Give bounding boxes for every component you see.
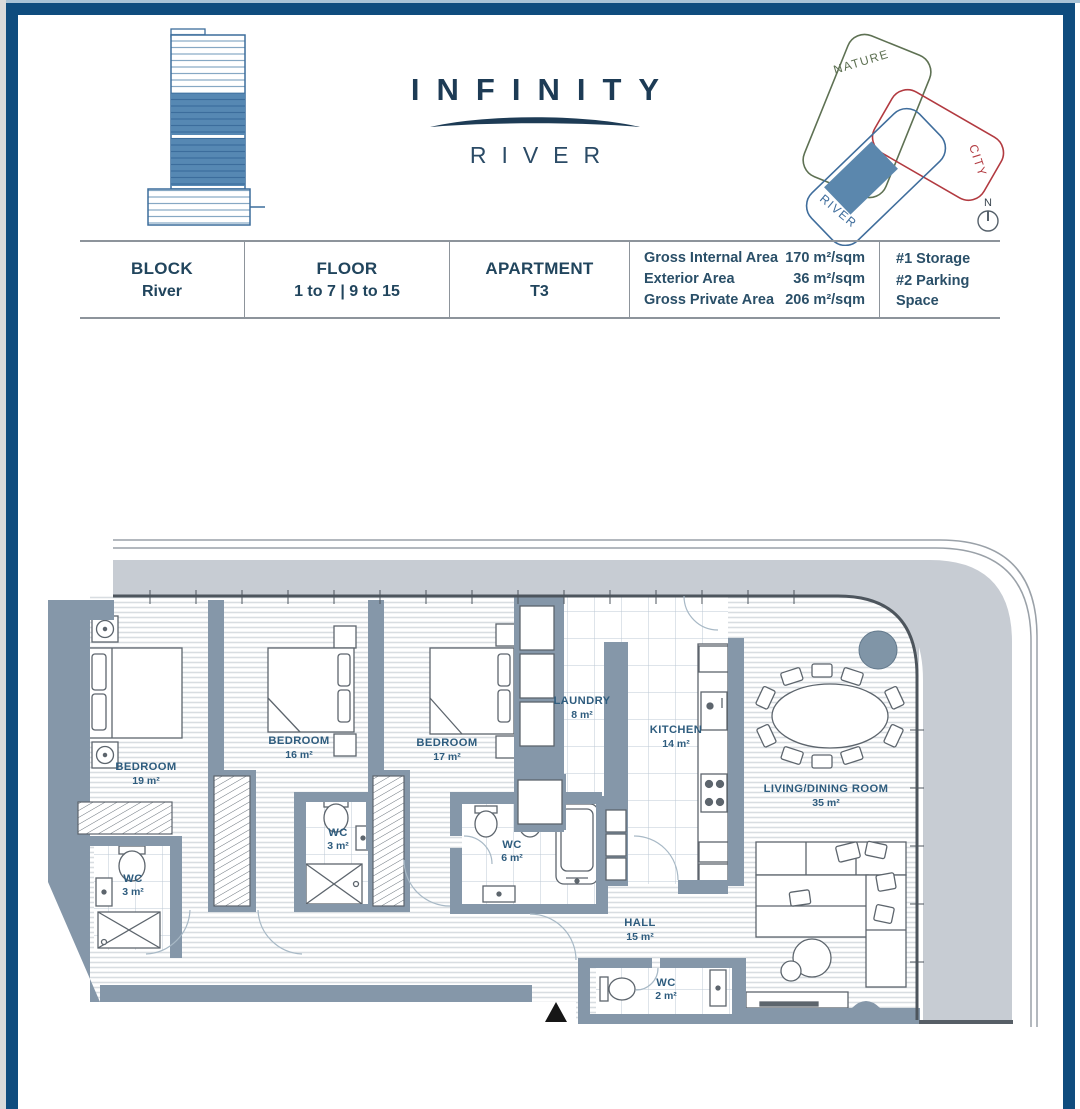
floorplan-sheet: INFINITY RIVER NATURE CITY RIVER N BLOCK (0, 0, 1080, 1109)
brand-block: INFINITY RIVER (330, 72, 740, 169)
floor-cell: FLOOR 1 to 7 | 9 to 15 (245, 242, 450, 317)
kitchen-counter (698, 644, 728, 884)
tower-highlight-band-lower (171, 138, 245, 186)
room-area-bedroom-16: 16 m² (285, 749, 313, 761)
block-cell: BLOCK River (80, 242, 245, 317)
area-label: Exterior Area (644, 270, 735, 289)
room-label-wc-6: WC (502, 839, 521, 851)
room-label-wc-2: WC (328, 827, 347, 839)
brand-title: INFINITY (330, 72, 740, 108)
area-label: Gross Internal Area (644, 249, 778, 268)
extras-cell: #1 Storage #2 Parking Space (880, 242, 1000, 317)
parking-line: #2 Parking Space (896, 271, 1000, 311)
room-area-kitchen: 14 m² (662, 738, 690, 750)
room-area-living-dining: 35 m² (812, 797, 840, 809)
building-logo-icon (138, 25, 268, 237)
storage-line: #1 Storage (896, 249, 1000, 269)
room-label-hall: HALL (624, 917, 655, 929)
room-label-wc-hall: WC (656, 977, 675, 989)
area-value: 206 m²/sqm (785, 291, 865, 310)
room-area-hall: 15 m² (626, 931, 654, 943)
room-area-wc-1: 3 m² (122, 886, 144, 898)
floor-plan: BEDROOM 19 m² BEDROOM 16 m² BEDROOM 17 m… (0, 530, 1080, 1060)
wave-icon (430, 117, 640, 131)
brand-subtitle: RIVER (330, 142, 740, 169)
building-locator-diagram: NATURE CITY RIVER N (785, 18, 1020, 246)
room-area-wc-2: 3 m² (327, 840, 349, 852)
room-label-bedroom-19: BEDROOM (115, 761, 176, 773)
block-header: BLOCK (131, 259, 193, 279)
apartment-value: T3 (530, 283, 549, 301)
room-area-bedroom-19: 19 m² (132, 775, 160, 787)
wing-fills (798, 29, 1010, 246)
area-row: Gross Private Area 206 m²/sqm (644, 291, 865, 310)
room-label-bedroom-17: BEDROOM (416, 737, 477, 749)
room-area-bedroom-17: 17 m² (433, 751, 461, 763)
tower-podium (148, 189, 250, 225)
area-row: Exterior Area 36 m²/sqm (644, 270, 865, 289)
floor-value: 1 to 7 | 9 to 15 (294, 283, 400, 301)
compass-north-label: N (984, 197, 992, 209)
page-border-top (6, 3, 1075, 15)
room-area-laundry: 8 m² (571, 709, 593, 721)
areas-cell: Gross Internal Area 170 m²/sqm Exterior … (630, 242, 880, 317)
compass-icon: N (978, 197, 998, 231)
room-area-wc-6: 6 m² (501, 852, 523, 864)
apartment-header: APARTMENT (485, 259, 593, 279)
area-row: Gross Internal Area 170 m²/sqm (644, 249, 865, 268)
room-label-living-dining: LIVING/DINING ROOM (764, 783, 889, 795)
room-label-kitchen: KITCHEN (650, 724, 703, 736)
room-area-wc-hall: 2 m² (655, 990, 677, 1002)
apartment-cell: APARTMENT T3 (450, 242, 630, 317)
room-label-laundry: LAUNDRY (553, 695, 610, 707)
room-label-wc-1: WC (123, 873, 142, 885)
exterior-mask (56, 1002, 576, 1022)
unit-info-table: BLOCK River FLOOR 1 to 7 | 9 to 15 APART… (80, 240, 1000, 319)
area-label: Gross Private Area (644, 291, 774, 310)
area-value: 36 m²/sqm (793, 270, 865, 289)
area-value: 170 m²/sqm (785, 249, 865, 268)
block-value: River (142, 283, 182, 301)
floor-header: FLOOR (317, 259, 378, 279)
room-label-bedroom-16: BEDROOM (268, 735, 329, 747)
sideboard (746, 992, 848, 1008)
column (859, 631, 897, 669)
tower-highlight-band-upper (171, 93, 245, 135)
